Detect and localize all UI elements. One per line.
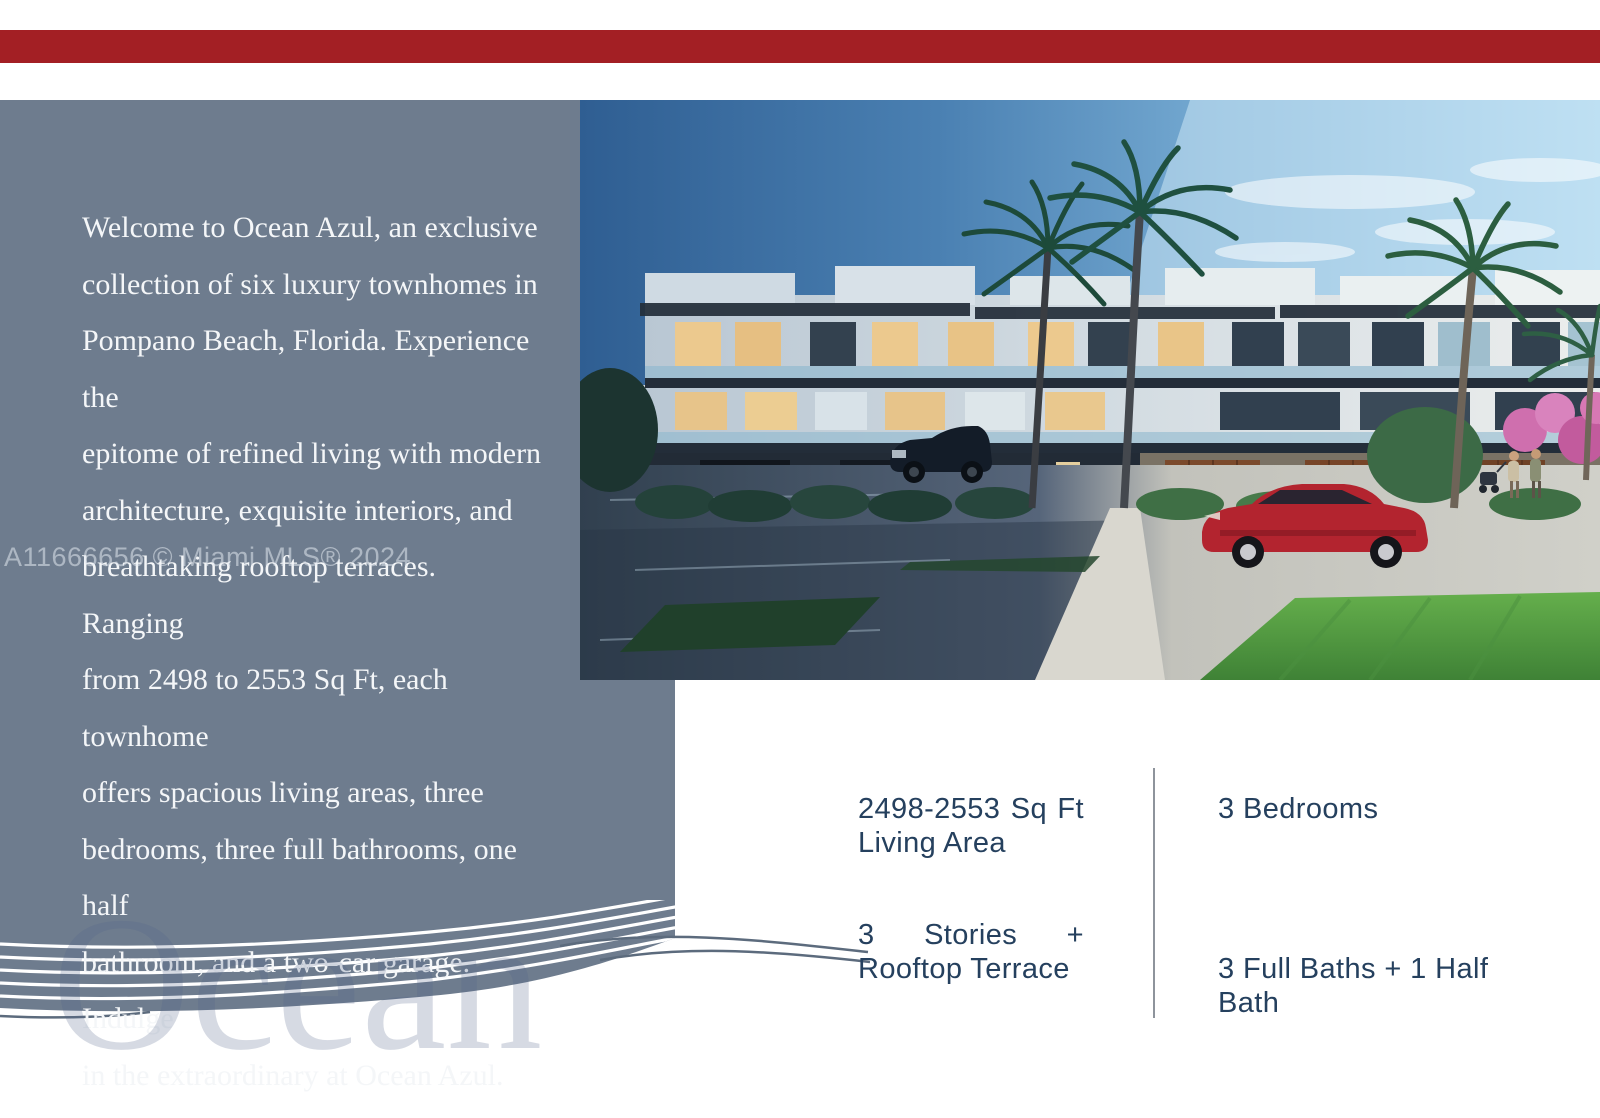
- stories-word: Stories: [924, 918, 1017, 952]
- balcony-rail-3: [645, 366, 1600, 378]
- living-area-label: Living Area: [858, 826, 1084, 860]
- feature-stories-line1: 3 Stories +: [858, 918, 1084, 952]
- floor-slab-3: [645, 378, 1600, 388]
- feature-stories: 3 Stories + Rooftop Terrace: [858, 918, 1084, 986]
- stories-label: Rooftop Terrace: [858, 952, 1084, 986]
- property-photo: [580, 100, 1600, 680]
- features-divider: [1153, 768, 1155, 1018]
- feature-bedrooms: 3 Bedrooms: [1218, 792, 1518, 826]
- top-accent-bar: [0, 30, 1600, 63]
- living-area-value: 2498-2553: [858, 792, 1000, 826]
- living-area-unit-ft: Ft: [1057, 792, 1084, 826]
- ocean-watermark-text: Ocean: [52, 888, 542, 1080]
- feature-living-area: 2498-2553 Sq Ft Living Area: [858, 792, 1084, 860]
- stories-plus: +: [1067, 918, 1084, 952]
- feature-baths: 3 Full Baths + 1 Half Bath: [1218, 918, 1508, 1054]
- feature-living-area-line1: 2498-2553 Sq Ft: [858, 792, 1084, 826]
- stories-count: 3: [858, 918, 875, 952]
- flyer-page: Ocean Welcome to Ocean Azul, an exclusiv…: [0, 0, 1600, 1118]
- mls-listing-watermark: A11666656 © Miami MLS® 2024: [4, 542, 411, 573]
- baths-label: 3 Full Baths + 1 Half Bath: [1218, 952, 1508, 1020]
- bedrooms-label: 3 Bedrooms: [1218, 792, 1518, 826]
- living-area-unit-sq: Sq: [1011, 792, 1047, 826]
